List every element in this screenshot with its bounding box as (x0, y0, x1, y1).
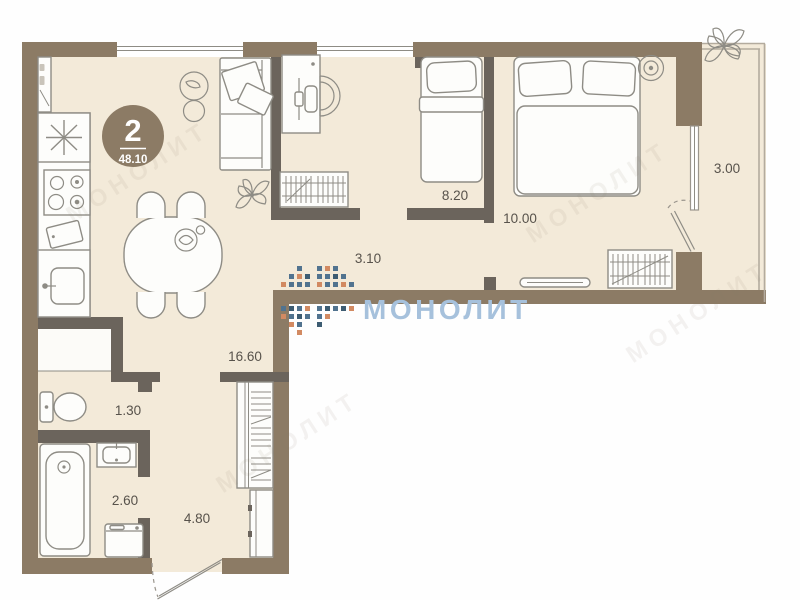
cabinet-hallway (248, 490, 273, 557)
bathroom-sink (97, 443, 136, 467)
toilet (40, 392, 86, 422)
dining-table (124, 217, 222, 293)
brand-logo-text: МОНОЛИТ (363, 294, 531, 325)
window-bedroom-small (317, 42, 413, 57)
label-corridor: 3.10 (355, 251, 381, 266)
bathtub (40, 433, 90, 556)
label-wc: 1.30 (115, 403, 141, 418)
bed-single (420, 57, 484, 182)
dresser-bedroom-master (608, 250, 672, 288)
window-kitchen (117, 42, 243, 57)
label-bedroom-small: 8.20 (442, 188, 468, 203)
balcony-partition-window (691, 126, 699, 210)
kitchen-sink (38, 250, 90, 317)
label-living-kitchen: 16.60 (228, 349, 262, 364)
floorplan-canvas: 16.60 8.20 10.00 3.00 3.10 1.30 2.60 4.8… (0, 0, 800, 600)
dresser-bedroom-small (280, 172, 348, 207)
badge-rooms-count: 2 (124, 113, 141, 148)
sliding-door-leaf (520, 278, 590, 287)
radiator (38, 57, 51, 112)
label-balcony: 3.00 (714, 161, 740, 176)
vent-hood-icon (38, 113, 90, 162)
desk (282, 55, 320, 133)
washing-machine (105, 524, 143, 557)
sofa (220, 58, 274, 170)
label-bathroom: 2.60 (112, 493, 138, 508)
vent-shaft-niche (38, 329, 111, 371)
floorplan-image: 16.60 8.20 10.00 3.00 3.10 1.30 2.60 4.8… (0, 0, 800, 600)
label-hallway: 4.80 (184, 511, 210, 526)
